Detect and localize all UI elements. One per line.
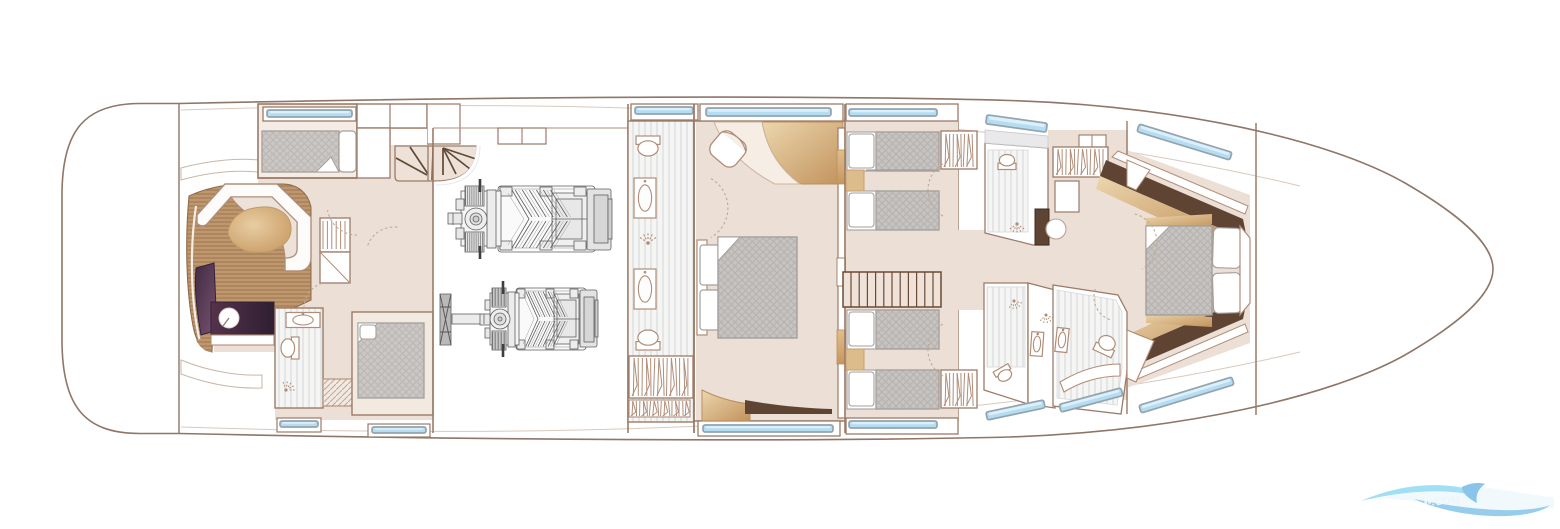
svg-text:▪▪.COM: ▪▪.COM	[1423, 494, 1460, 509]
